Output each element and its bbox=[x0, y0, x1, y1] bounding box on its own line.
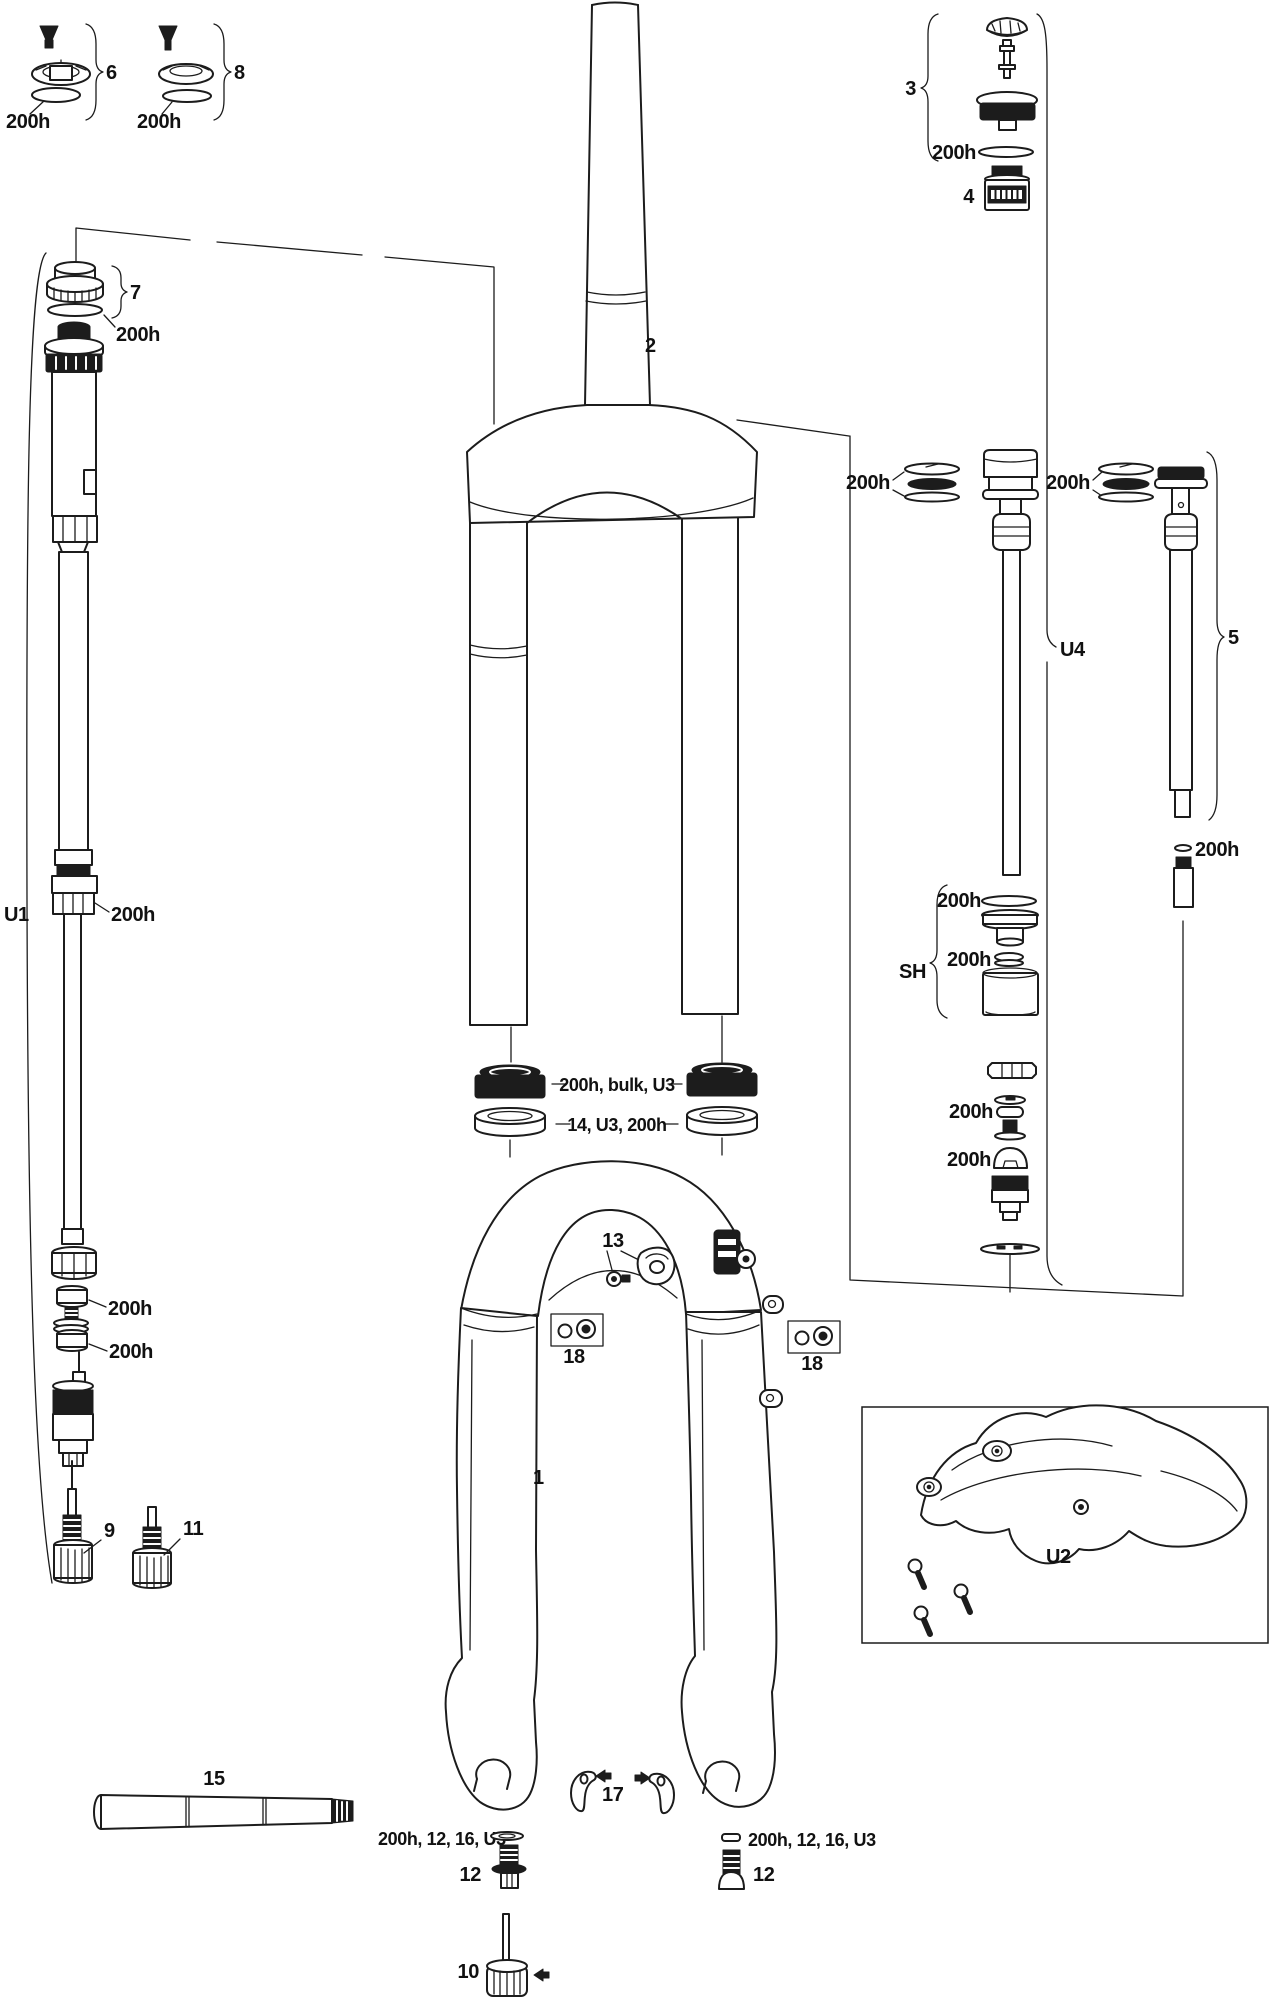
hardware-kit-18-right: 18 bbox=[788, 1321, 840, 1375]
brace-7 bbox=[112, 266, 127, 318]
brace-3 bbox=[921, 14, 938, 161]
callout-200h-damper-collar: 200h bbox=[111, 904, 155, 926]
air-shaft-5: 5 200h bbox=[1155, 452, 1239, 907]
part-number-18-left: 18 bbox=[563, 1346, 585, 1368]
steerer-tube bbox=[585, 3, 650, 406]
rebound-adjuster-9: 9 bbox=[54, 1461, 115, 1583]
group-label-U1: U1 bbox=[4, 904, 29, 926]
group-label-U2: U2 bbox=[1046, 1546, 1071, 1568]
callout-200h-group8: 200h bbox=[137, 111, 181, 133]
fork-exploded-diagram-canvas: 6 200h 8 200h U1 7 200h bbox=[0, 0, 1271, 2000]
adjuster-group-8: 8 200h bbox=[137, 24, 245, 133]
callout-200h-sh-1: 200h bbox=[937, 890, 981, 912]
thru-axle-15: 15 bbox=[94, 1768, 353, 1829]
part-number-5: 5 bbox=[1228, 627, 1239, 649]
rebound-knob-10: 10 bbox=[458, 1914, 549, 1996]
air-piston-seals-5: 200h bbox=[1046, 464, 1153, 502]
part-number-18-right: 18 bbox=[801, 1353, 823, 1375]
shaft-bolt-right: 200h, 12, 16, U3 12 bbox=[719, 1830, 876, 1889]
air-piston-seals-u4: 200h bbox=[846, 464, 959, 502]
shaft-bolt-left: 200h, 12, 16, U3 12 bbox=[378, 1829, 526, 1888]
part-number-7: 7 bbox=[130, 282, 141, 304]
part-number-12-right: 12 bbox=[753, 1864, 775, 1886]
brake-post-upper bbox=[763, 1296, 783, 1313]
left-stanchion bbox=[470, 518, 527, 1025]
foam-rings: 14, U3, 200h bbox=[475, 1107, 757, 1157]
part-number-10: 10 bbox=[458, 1961, 480, 1983]
callout-200h-stack-2: 200h bbox=[947, 1149, 991, 1171]
part-number-8: 8 bbox=[234, 62, 245, 84]
bracket-U1 bbox=[27, 253, 52, 1583]
part-number-1: 1 bbox=[533, 1467, 544, 1489]
lower-legs bbox=[446, 1161, 783, 1809]
dust-wiper-seals: 200h, bulk, U3 bbox=[475, 1063, 757, 1098]
fender-kit-U2: U2 bbox=[862, 1405, 1268, 1643]
upper-tubes bbox=[470, 506, 738, 1025]
leader-tube-to-seal bbox=[511, 1016, 722, 1062]
brace-8 bbox=[214, 24, 231, 120]
fender-bolts bbox=[909, 1560, 971, 1635]
callout-axle-bolt-right: 200h, 12, 16, U3 bbox=[748, 1830, 876, 1850]
part-number-2: 2 bbox=[645, 335, 656, 357]
crown bbox=[467, 405, 757, 523]
part-number-9: 9 bbox=[104, 1520, 115, 1542]
part-number-6: 6 bbox=[106, 62, 117, 84]
part-number-17: 17 bbox=[602, 1784, 624, 1806]
part-number-11: 11 bbox=[183, 1518, 204, 1540]
adjuster-knob-11: 11 bbox=[133, 1507, 204, 1588]
fender bbox=[921, 1405, 1246, 1563]
callout-200h-group7: 200h bbox=[116, 324, 160, 346]
clip-kit-17: 17 bbox=[571, 1770, 674, 1813]
part-number-3: 3 bbox=[905, 78, 916, 100]
part-number-15: 15 bbox=[203, 1768, 225, 1790]
callout-wiper-seal: 200h, bulk, U3 bbox=[559, 1075, 675, 1095]
left-leg bbox=[446, 1308, 538, 1810]
shaft-hardware-stack: 200h 200h bbox=[947, 1063, 1039, 1292]
callout-200h-sh-2: 200h bbox=[947, 949, 991, 971]
callout-200h-spacer-2: 200h bbox=[109, 1341, 153, 1363]
callout-200h-5-seals: 200h bbox=[1046, 472, 1090, 494]
callout-200h-stack-1: 200h bbox=[949, 1101, 993, 1123]
part-number-12-left: 12 bbox=[460, 1864, 482, 1886]
callout-200h-token: 200h bbox=[1195, 839, 1239, 861]
callout-200h-group3: 200h bbox=[932, 142, 976, 164]
canister-4: 4 bbox=[963, 166, 1029, 210]
part-number-13: 13 bbox=[602, 1230, 624, 1252]
seal-head-group-SH: SH 200h 200h bbox=[899, 885, 1038, 1018]
group-label-U4: U4 bbox=[1060, 639, 1086, 661]
damper-cartridge: 200h bbox=[45, 322, 155, 1244]
bracket-U4 bbox=[1037, 14, 1062, 1285]
callout-foam-ring: 14, U3, 200h bbox=[567, 1115, 666, 1135]
callout-200h-spacer-1: 200h bbox=[108, 1298, 152, 1320]
top-cap-group-3: 3 200h bbox=[905, 14, 1037, 164]
brake-post-lower bbox=[760, 1390, 782, 1407]
right-stanchion bbox=[682, 506, 738, 1014]
exploded-parts-diagram: 6 200h 8 200h U1 7 200h bbox=[0, 0, 1271, 2000]
callout-axle-bolt-left: 200h, 12, 16, U3 bbox=[378, 1829, 506, 1849]
part-number-4: 4 bbox=[963, 186, 975, 208]
callout-200h-group6: 200h bbox=[6, 111, 50, 133]
adjuster-group-6: 6 200h bbox=[6, 24, 117, 133]
callout-200h-u4-seals: 200h bbox=[846, 472, 890, 494]
right-leg bbox=[682, 1312, 777, 1807]
hardware-kit-18-left: 18 bbox=[551, 1314, 603, 1368]
damper-shaft-hardware: 200h 200h bbox=[52, 1247, 153, 1466]
group-label-SH: SH bbox=[899, 961, 926, 983]
air-shaft-u4 bbox=[983, 450, 1038, 875]
brace-5 bbox=[1207, 452, 1224, 820]
